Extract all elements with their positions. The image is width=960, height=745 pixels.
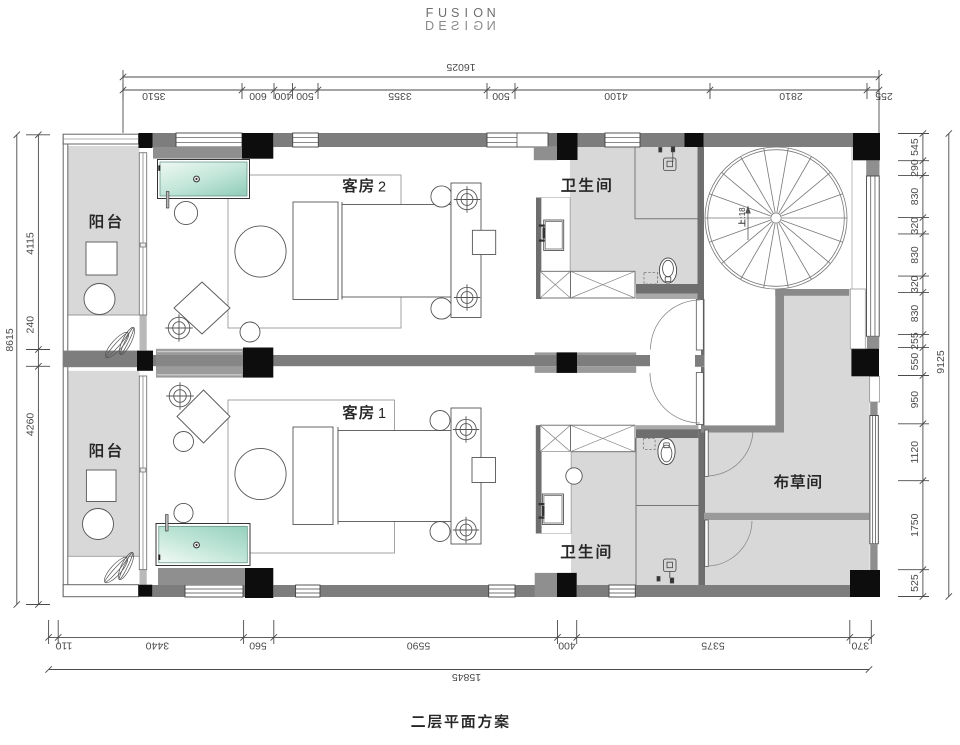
svg-text:2810: 2810 [779,90,803,102]
svg-text:O: O [473,6,483,20]
svg-text:1750: 1750 [909,513,921,537]
svg-text:I: I [465,6,469,20]
svg-text:830: 830 [909,188,921,206]
svg-text:545: 545 [909,138,921,156]
svg-text:4100: 4100 [604,90,628,102]
svg-text:830: 830 [909,246,921,264]
svg-text:U: U [438,6,447,20]
svg-text:3440: 3440 [146,640,170,652]
svg-text:400: 400 [274,90,292,102]
svg-text:500: 500 [296,90,314,102]
svg-text:16025: 16025 [446,61,475,73]
svg-text:4115: 4115 [24,232,36,255]
svg-text:15845: 15845 [452,671,481,683]
svg-text:G: G [473,19,483,33]
svg-text:9125: 9125 [935,350,947,374]
svg-text:550: 550 [909,353,921,371]
svg-text:4260: 4260 [24,413,36,437]
svg-text:1: 1 [378,406,386,422]
svg-text:5590: 5590 [407,640,431,652]
svg-text:830: 830 [909,305,921,323]
svg-text:S: S [451,19,459,33]
svg-text:560: 560 [249,640,267,652]
svg-text:525: 525 [909,574,921,592]
svg-text:2: 2 [378,179,386,195]
svg-text:3355: 3355 [388,90,412,102]
svg-text:N: N [487,19,496,33]
svg-text:600: 600 [249,90,267,102]
svg-text:F: F [426,6,434,20]
svg-text:950: 950 [909,391,921,409]
svg-text:290: 290 [909,159,921,177]
svg-text:S: S [451,6,459,20]
svg-text:E: E [438,19,446,33]
svg-text:3510: 3510 [142,90,166,102]
svg-text:8615: 8615 [4,328,16,352]
svg-text:320: 320 [909,275,921,293]
svg-text:400: 400 [558,640,576,652]
svg-text:1120: 1120 [909,441,921,464]
svg-text:500: 500 [492,90,510,102]
svg-text::18: :18 [738,207,747,219]
svg-text:255: 255 [875,90,893,102]
svg-text:370: 370 [851,640,869,652]
svg-text:110: 110 [55,640,72,652]
svg-text:240: 240 [24,316,36,334]
svg-text:320: 320 [909,217,921,235]
svg-text:5375: 5375 [701,640,725,652]
svg-text:I: I [465,19,469,33]
svg-text:D: D [425,19,434,33]
svg-text:255: 255 [909,332,921,350]
svg-text:N: N [487,6,496,20]
